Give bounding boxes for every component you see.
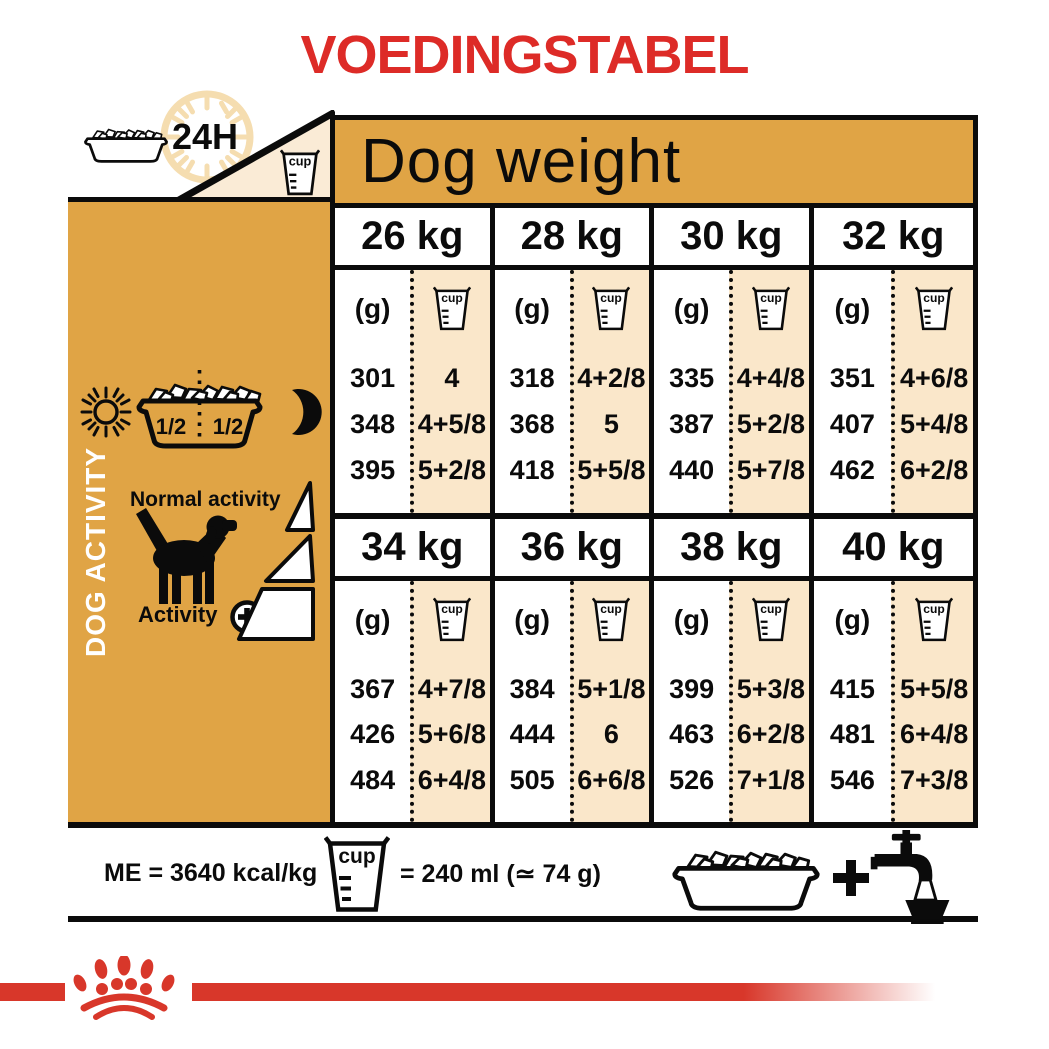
grams-unit-label: (g)	[355, 293, 391, 325]
cups-value: 6+4/8	[418, 765, 486, 796]
cup-subcolumn: 4+2/855+5/8	[570, 270, 649, 513]
legend-bar: ME = 3640 kcal/kg = 240 ml (≃ 74 g)	[68, 822, 978, 922]
grams-subcolumn: (g) 384444505	[495, 581, 570, 822]
cups-value: 5+7/8	[737, 455, 805, 486]
cups-value: 4+7/8	[418, 674, 486, 705]
grams-value: 444	[510, 719, 555, 750]
grams-value: 351	[830, 363, 875, 394]
content-row: (g) 367426484 4+7/85+6/86+4/8 (g) 384444…	[335, 581, 973, 822]
grams-value: 367	[350, 674, 395, 705]
feeding-table-page: VOEDINGSTABEL 24H Dog weight 26 kg28 kg3…	[0, 0, 1049, 1049]
grams-value: 368	[510, 409, 555, 440]
measuring-cup-icon	[915, 286, 953, 332]
measuring-cup-icon	[433, 597, 471, 643]
cups-value: 6+6/8	[577, 765, 645, 796]
weight-header: 28 kg	[495, 208, 655, 265]
grams-value: 415	[830, 674, 875, 705]
cups-value: 4+6/8	[900, 363, 968, 394]
crown-paw-logo	[70, 956, 180, 1020]
grams-value: 387	[669, 409, 714, 440]
grams-subcolumn: (g) 367426484	[335, 581, 410, 822]
grams-value: 526	[669, 765, 714, 796]
table-block: 34 kg36 kg38 kg40 kg (g) 367426484 4+7/8…	[335, 513, 973, 822]
weight-column: (g) 351407462 4+6/85+4/86+2/8	[814, 270, 974, 513]
weights-row: 26 kg28 kg30 kg32 kg	[335, 208, 973, 270]
weight-header: 30 kg	[654, 208, 814, 265]
activity-label: Activity	[138, 602, 217, 628]
cup-subcolumn: 5+3/86+2/87+1/8	[729, 581, 808, 822]
measuring-cup-icon	[433, 286, 471, 332]
measuring-cup-icon	[320, 836, 394, 914]
cup-subcolumn: 4+6/85+4/86+2/8	[891, 270, 973, 513]
dog-silhouette-icon	[132, 506, 237, 606]
weight-header: 36 kg	[495, 519, 655, 576]
weight-column: (g) 301348395 44+5/85+2/8	[335, 270, 495, 513]
page-title: VOEDINGSTABEL	[0, 24, 1049, 86]
measuring-cup-icon	[280, 149, 320, 197]
grams-unit-label: (g)	[514, 604, 550, 636]
grams-subcolumn: (g) 318368418	[495, 270, 570, 513]
grams-value: 418	[510, 455, 555, 486]
activity-sidebar: 1/2 1/2 DOG ACTIVITY Normal activity Act…	[68, 197, 330, 828]
water-tap-icon	[868, 830, 956, 924]
table-block: 26 kg28 kg30 kg32 kg (g) 301348395 44+5/…	[335, 208, 973, 513]
cup-subcolumn: 44+5/85+2/8	[410, 270, 489, 513]
weight-header: 34 kg	[335, 519, 495, 576]
measuring-cup-icon	[915, 597, 953, 643]
cups-value: 7+3/8	[900, 765, 968, 796]
grams-value: 546	[830, 765, 875, 796]
brand-stripe-right	[192, 983, 958, 1001]
weight-column: (g) 384444505 5+1/866+6/8	[495, 581, 655, 822]
half-ration-bowl-icon: 1/2 1/2	[131, 368, 268, 465]
content-row: (g) 301348395 44+5/85+2/8 (g) 318368418	[335, 270, 973, 513]
grams-value: 318	[510, 363, 555, 394]
cups-value: 6+2/8	[900, 455, 968, 486]
cup-subcolumn: 4+7/85+6/86+4/8	[410, 581, 489, 822]
cups-value: 5+2/8	[737, 409, 805, 440]
grams-value: 484	[350, 765, 395, 796]
cups-value: 6+4/8	[900, 719, 968, 750]
measuring-cup-icon	[752, 286, 790, 332]
cups-value: 5+5/8	[900, 674, 968, 705]
grams-value: 463	[669, 719, 714, 750]
grams-unit-label: (g)	[834, 293, 870, 325]
cups-value: 5+3/8	[737, 674, 805, 705]
measuring-cup-icon	[752, 597, 790, 643]
plus-icon	[833, 858, 869, 898]
weight-column: (g) 415481546 5+5/86+4/87+3/8	[814, 581, 974, 822]
grams-value: 348	[350, 409, 395, 440]
cups-value: 4+2/8	[577, 363, 645, 394]
cups-value: 5	[604, 409, 619, 440]
sun-icon	[78, 384, 134, 440]
grams-subcolumn: (g) 351407462	[814, 270, 892, 513]
grams-subcolumn: (g) 415481546	[814, 581, 892, 822]
grams-unit-label: (g)	[355, 604, 391, 636]
cups-value: 4+5/8	[418, 409, 486, 440]
brand-stripe-left	[0, 983, 65, 1001]
cups-value: 6	[604, 719, 619, 750]
grams-value: 426	[350, 719, 395, 750]
kibble-bowl-icon	[665, 838, 827, 914]
grams-value: 440	[669, 455, 714, 486]
cup-equivalence-label: = 240 ml (≃ 74 g)	[400, 859, 601, 889]
cup-subcolumn: 5+1/866+6/8	[570, 581, 649, 822]
grams-value: 395	[350, 455, 395, 486]
grams-subcolumn: (g) 399463526	[654, 581, 729, 822]
grams-unit-label: (g)	[674, 293, 710, 325]
cups-value: 5+4/8	[900, 409, 968, 440]
cups-value: 5+1/8	[577, 674, 645, 705]
weight-header: 40 kg	[814, 519, 974, 576]
measuring-cup-icon	[592, 597, 630, 643]
grams-value: 462	[830, 455, 875, 486]
metabolizable-energy-label: ME = 3640 kcal/kg	[104, 859, 317, 888]
dog-weight-header: Dog weight	[335, 120, 973, 208]
measuring-cup-icon	[592, 286, 630, 332]
grams-value: 399	[669, 674, 714, 705]
cups-value: 5+2/8	[418, 455, 486, 486]
table-blocks: 26 kg28 kg30 kg32 kg (g) 301348395 44+5/…	[335, 208, 973, 822]
daily-ration-bowl-icon	[80, 112, 172, 174]
grams-value: 407	[830, 409, 875, 440]
svg-text:1/2: 1/2	[213, 414, 244, 439]
grams-value: 384	[510, 674, 555, 705]
grams-value: 481	[830, 719, 875, 750]
grams-unit-label: (g)	[834, 604, 870, 636]
weight-header: 32 kg	[814, 208, 974, 265]
grams-value: 301	[350, 363, 395, 394]
grams-subcolumn: (g) 301348395	[335, 270, 410, 513]
grams-subcolumn: (g) 335387440	[654, 270, 729, 513]
dog-activity-label: DOG ACTIVITY	[80, 447, 112, 657]
grams-unit-label: (g)	[674, 604, 710, 636]
grams-value: 505	[510, 765, 555, 796]
cups-value: 7+1/8	[737, 765, 805, 796]
weights-row: 34 kg36 kg38 kg40 kg	[335, 519, 973, 581]
grams-value: 335	[669, 363, 714, 394]
cup-subcolumn: 5+5/86+4/87+3/8	[891, 581, 973, 822]
grams-unit-label: (g)	[514, 293, 550, 325]
moon-icon	[276, 388, 322, 436]
weight-column: (g) 367426484 4+7/85+6/86+4/8	[335, 581, 495, 822]
svg-text:1/2: 1/2	[156, 414, 187, 439]
cups-value: 4	[444, 363, 459, 394]
cup-subcolumn: 4+4/85+2/85+7/8	[729, 270, 808, 513]
cups-value: 5+6/8	[418, 719, 486, 750]
weights-table: Dog weight 26 kg28 kg30 kg32 kg (g) 3013…	[330, 115, 978, 827]
weight-column: (g) 399463526 5+3/86+2/87+1/8	[654, 581, 814, 822]
cups-value: 6+2/8	[737, 719, 805, 750]
weight-header: 38 kg	[654, 519, 814, 576]
cups-value: 4+4/8	[737, 363, 805, 394]
cups-value: 5+5/8	[577, 455, 645, 486]
24h-label: 24H	[172, 116, 238, 158]
weight-column: (g) 318368418 4+2/855+5/8	[495, 270, 655, 513]
weight-column: (g) 335387440 4+4/85+2/85+7/8	[654, 270, 814, 513]
activity-ramps-icon	[233, 481, 318, 647]
weight-header: 26 kg	[335, 208, 495, 265]
